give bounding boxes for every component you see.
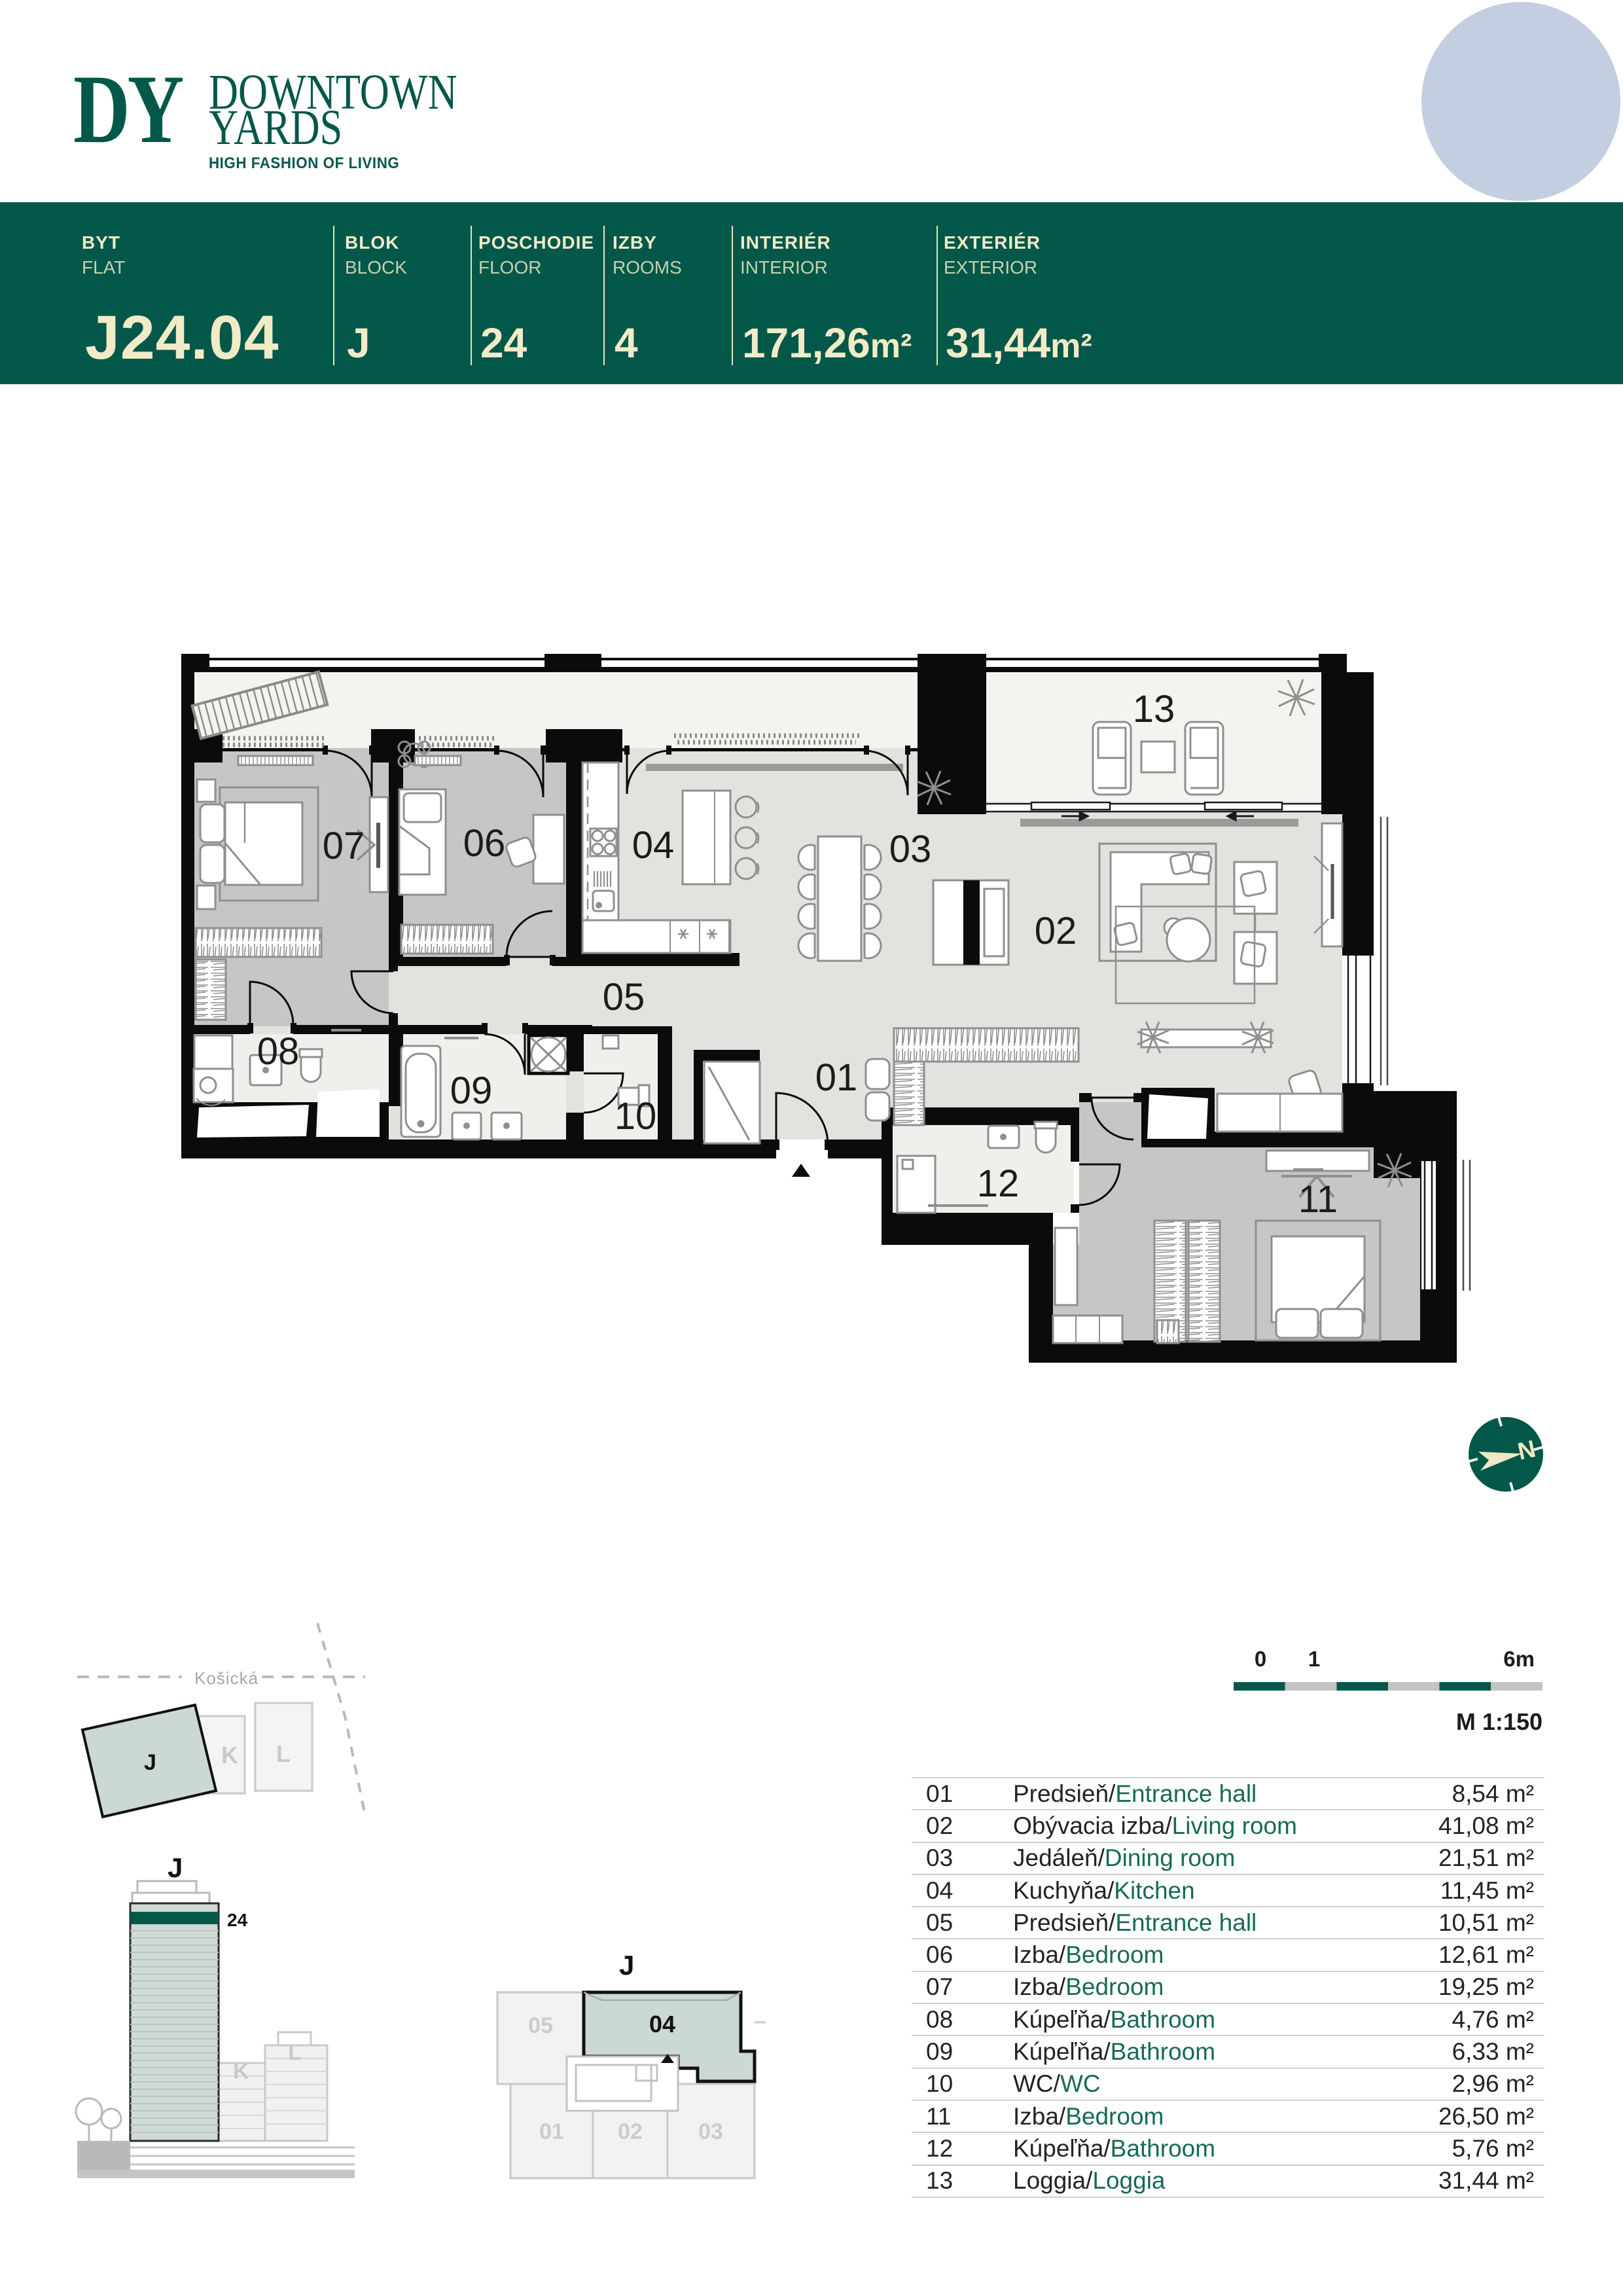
svg-text:07: 07 — [323, 825, 365, 867]
svg-text:K: K — [221, 1742, 238, 1768]
svg-text:24: 24 — [227, 1910, 248, 1930]
svg-text:01: 01 — [815, 1056, 858, 1099]
svg-text:Košická: Košická — [194, 1668, 259, 1688]
svg-text:04: 04 — [649, 2011, 675, 2037]
svg-text:01: 01 — [539, 2119, 564, 2144]
svg-text:L: L — [288, 2040, 302, 2065]
svg-text:13: 13 — [1133, 688, 1175, 730]
svg-text:02: 02 — [1035, 910, 1077, 952]
svg-text:J: J — [168, 1852, 183, 1883]
svg-text:10: 10 — [615, 1095, 657, 1138]
svg-text:05: 05 — [603, 976, 645, 1018]
svg-text:J: J — [619, 1950, 634, 1981]
svg-text:05: 05 — [528, 2013, 553, 2038]
svg-text:11: 11 — [1298, 1178, 1338, 1221]
svg-text:09: 09 — [450, 1069, 493, 1112]
svg-text:J: J — [144, 1750, 156, 1775]
svg-text:L: L — [276, 1740, 291, 1767]
svg-text:03: 03 — [889, 828, 932, 870]
svg-text:04: 04 — [632, 824, 675, 867]
svg-text:02: 02 — [618, 2119, 643, 2144]
svg-text:K: K — [233, 2059, 249, 2084]
svg-text:06: 06 — [463, 822, 506, 865]
svg-text:03: 03 — [698, 2119, 723, 2144]
svg-text:12: 12 — [977, 1162, 1020, 1205]
svg-text:08: 08 — [257, 1030, 300, 1073]
